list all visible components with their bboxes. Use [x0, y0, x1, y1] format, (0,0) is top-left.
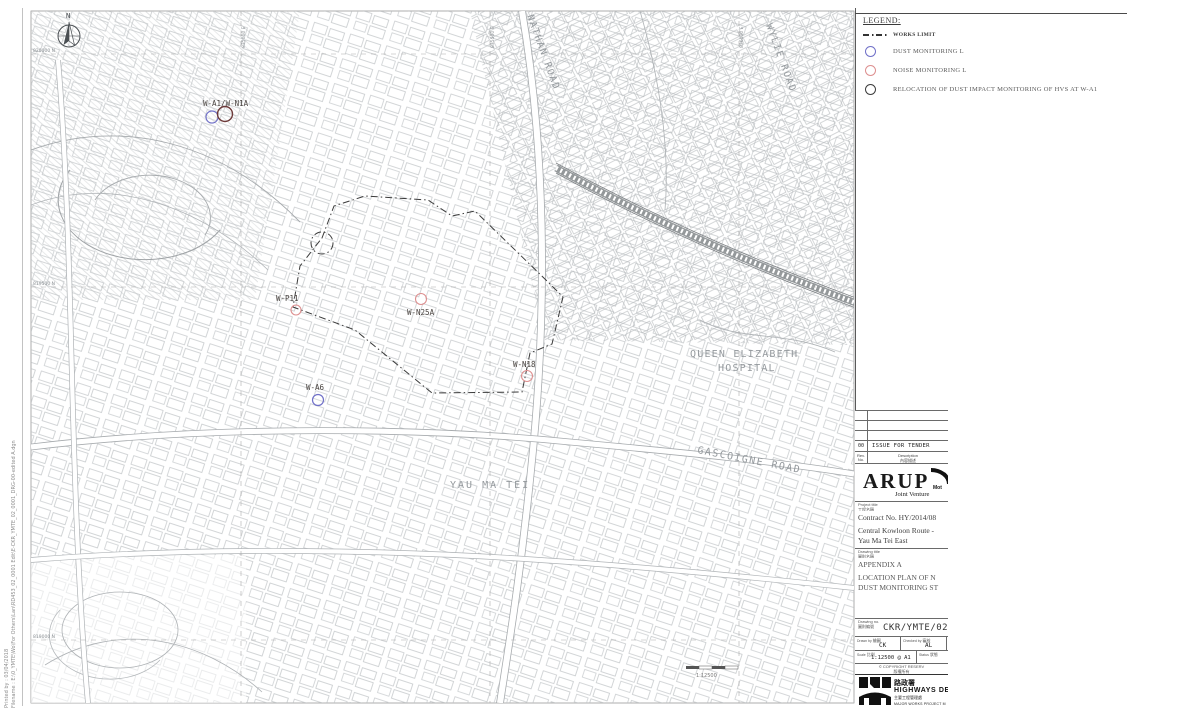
consultant-logo-block: ARUP Mot Joint Venture — [855, 463, 948, 501]
legend-item-label: DUST MONITORING L — [893, 48, 964, 55]
legend-item-label: RELOCATION OF DUST IMPACT MONITORING OF … — [893, 86, 1097, 93]
revision-header-row: Rev. No. Description 內容描述 — [855, 451, 948, 463]
rev-no-header: Rev. No. — [855, 452, 868, 463]
appendix-text: APPENDIX A — [855, 558, 948, 573]
grid-label-top-2: 835500 E — [490, 26, 496, 48]
mott-logo-text: Mot — [933, 485, 942, 491]
legend-item-label: NOISE MONITORING L — [893, 67, 967, 74]
highways-department-block: 路政署 HIGHWAYS DEP 主要工程管理處 MAJOR WORKS PRO… — [855, 674, 948, 712]
revision-row-empty — [855, 410, 948, 420]
station-label: W-P11 — [276, 294, 299, 303]
grid-label-left-2: 819500 N — [33, 281, 55, 287]
legend: LEGEND: WORKS LIMIT DUST MONITORING L NO… — [863, 16, 1163, 103]
drawn-checked-row: Drawn by 繪圖 CK Checked by 審核 AL — [855, 636, 948, 650]
contract-number: Contract No. HY/2014/08 — [855, 511, 948, 526]
scale-text: 1:12500 — [696, 673, 717, 679]
highways-department-text: 路政署 HIGHWAYS DEP 主要工程管理處 MAJOR WORKS PRO… — [894, 680, 948, 708]
checked-by-cell: Checked by 審核 AL — [901, 637, 947, 650]
station-label: W-N18 — [513, 360, 536, 369]
drawn-by-value: CK — [879, 642, 886, 649]
status-cell: Status 狀態 — [917, 651, 948, 663]
project-title-label: Project title 工程名稱 — [855, 501, 948, 511]
copyright-note: © COPYRIGHT RESERV 版權所有 — [855, 663, 948, 674]
drawn-by-cell: Drawn by 繪圖 CK — [855, 637, 901, 650]
revision-row-issue: 00 ISSUE FOR TENDER — [855, 440, 948, 451]
drawing-title-label: Drawing title 圖則名稱 — [855, 548, 948, 558]
map-canvas: 820000 N 819500 N 819000 N 835000 E 8355… — [0, 0, 1186, 712]
legend-item-noise: NOISE MONITORING L — [863, 65, 1163, 76]
revision-row-empty — [855, 420, 948, 430]
station-label: W-A6 — [306, 383, 325, 392]
legend-item-relocation: RELOCATION OF DUST IMPACT MONITORING OF … — [863, 84, 1163, 95]
checked-by-value: AL — [925, 642, 932, 649]
drawing-title: LOCATION PLAN OF N DUST MONITORING ST — [855, 573, 948, 595]
project-name: Central Kowloon Route - Yau Ma Tei East — [855, 526, 948, 548]
grid-label-left-1: 820000 N — [33, 48, 55, 54]
mott-logo-icon — [931, 468, 948, 484]
legend-item-works-limit: WORKS LIMIT — [863, 32, 1163, 38]
dust-circle-icon — [863, 46, 893, 57]
works-limit-line-icon — [863, 34, 893, 35]
place-label-hospital: HOSPITAL — [718, 363, 776, 374]
station-label: W-A1/W-N1A — [203, 99, 249, 108]
north-label: N — [66, 12, 70, 20]
scale-status-row: Scale 比例 1:12500 @ A1 Status 狀態 — [855, 650, 948, 663]
title-block: 00 ISSUE FOR TENDER Rev. No. Description… — [855, 410, 948, 712]
drawing-number: CKR/YMTE/02/0 — [883, 623, 948, 633]
place-label-yau-ma-tei: YAU MA TEI — [450, 480, 530, 491]
scale-value: 1:12500 @ A1 — [871, 655, 911, 661]
place-label-queen-elizabeth: QUEEN ELIZABETH — [690, 349, 798, 360]
highways-department-logo-icon — [855, 676, 894, 711]
grid-label-left-3: 819000 N — [33, 634, 55, 640]
joint-venture-text: Joint Venture — [895, 491, 929, 498]
grid-label-top-1: 835000 E — [241, 26, 247, 48]
legend-item-dust: DUST MONITORING L — [863, 46, 1163, 57]
scale-cell: Scale 比例 1:12500 @ A1 — [855, 651, 917, 663]
drawing-number-row: Drawing no. 圖則編號 CKR/YMTE/02/0 — [855, 618, 948, 636]
revision-row-empty — [855, 430, 948, 440]
revision-number: 00 — [855, 441, 868, 451]
station-label: W-N25A — [407, 308, 435, 317]
sheet-top-border — [855, 13, 1127, 14]
legend-title: LEGEND: — [863, 16, 1163, 25]
legend-item-label: WORKS LIMIT — [893, 32, 936, 38]
revision-description: ISSUE FOR TENDER — [868, 443, 930, 449]
relocation-circle-icon — [863, 84, 893, 95]
drawing-no-label: Drawing no. 圖則編號 — [858, 620, 879, 629]
noise-circle-icon — [863, 65, 893, 76]
description-header: Description 內容描述 — [868, 452, 948, 463]
drawing-sheet: Printed by : 03/04/2018 Filename : E:\0_… — [0, 0, 1186, 712]
grid-label-top-3: 836000 E — [739, 26, 745, 48]
